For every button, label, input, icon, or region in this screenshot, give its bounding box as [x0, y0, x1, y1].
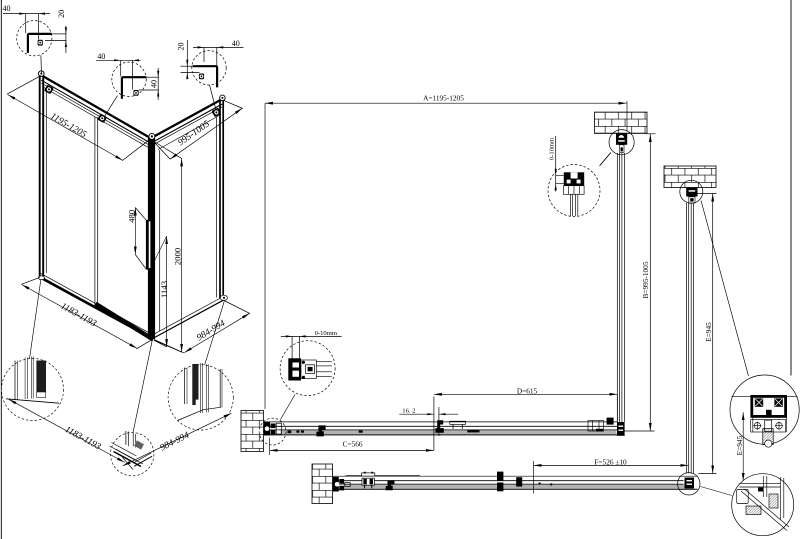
svg-text:2000: 2000: [173, 247, 183, 265]
svg-text:16. 2: 16. 2: [402, 407, 415, 414]
svg-text:40: 40: [3, 4, 11, 13]
svg-text:40: 40: [232, 39, 240, 48]
svg-text:1183-1193: 1183-1193: [63, 425, 103, 453]
svg-text:E=945: E=945: [704, 322, 713, 342]
svg-text:20: 20: [177, 43, 186, 51]
svg-text:F=526 ±10: F=526 ±10: [594, 457, 627, 466]
svg-text:20: 20: [57, 10, 66, 18]
svg-text:0-10mm: 0-10mm: [315, 330, 338, 337]
svg-text:40: 40: [97, 52, 105, 61]
svg-text:984-994: 984-994: [195, 318, 227, 343]
svg-text:1143: 1143: [159, 280, 169, 298]
svg-text:C=566: C=566: [343, 440, 363, 449]
svg-text:40: 40: [150, 80, 159, 88]
svg-text:984-994: 984-994: [159, 431, 192, 454]
svg-text:B=995-1005: B=995-1005: [641, 261, 650, 298]
svg-text:480: 480: [126, 209, 136, 223]
svg-text:A=1195-1205: A=1195-1205: [423, 94, 464, 103]
svg-text:E=945: E=945: [735, 435, 744, 455]
svg-text:1195-1205: 1195-1205: [48, 112, 88, 141]
svg-text:0-10mm: 0-10mm: [549, 137, 556, 160]
